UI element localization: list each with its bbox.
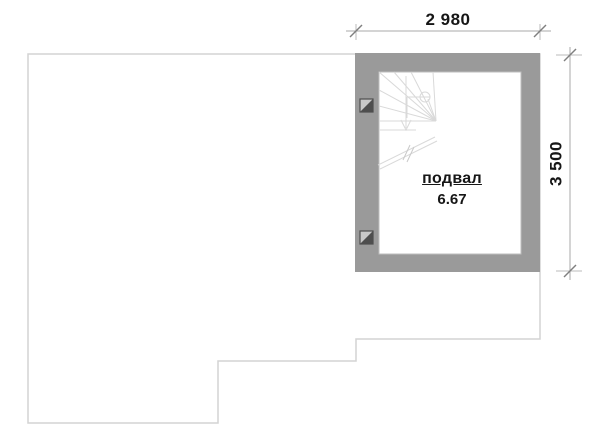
wall-marker-icon bbox=[360, 231, 373, 244]
basement-room-floor bbox=[379, 72, 521, 254]
wall-marker-icon bbox=[360, 99, 373, 112]
floor-plan-canvas: 2 980 3 500 подвал 6.67 bbox=[0, 0, 600, 448]
room-name-label: подвал bbox=[400, 170, 504, 188]
floor-plan-drawing bbox=[0, 0, 600, 448]
dimension-height-label: 3 500 bbox=[548, 122, 565, 206]
dimension-width-label: 2 980 bbox=[396, 10, 500, 30]
room-area-value: 6.67 bbox=[400, 191, 504, 208]
